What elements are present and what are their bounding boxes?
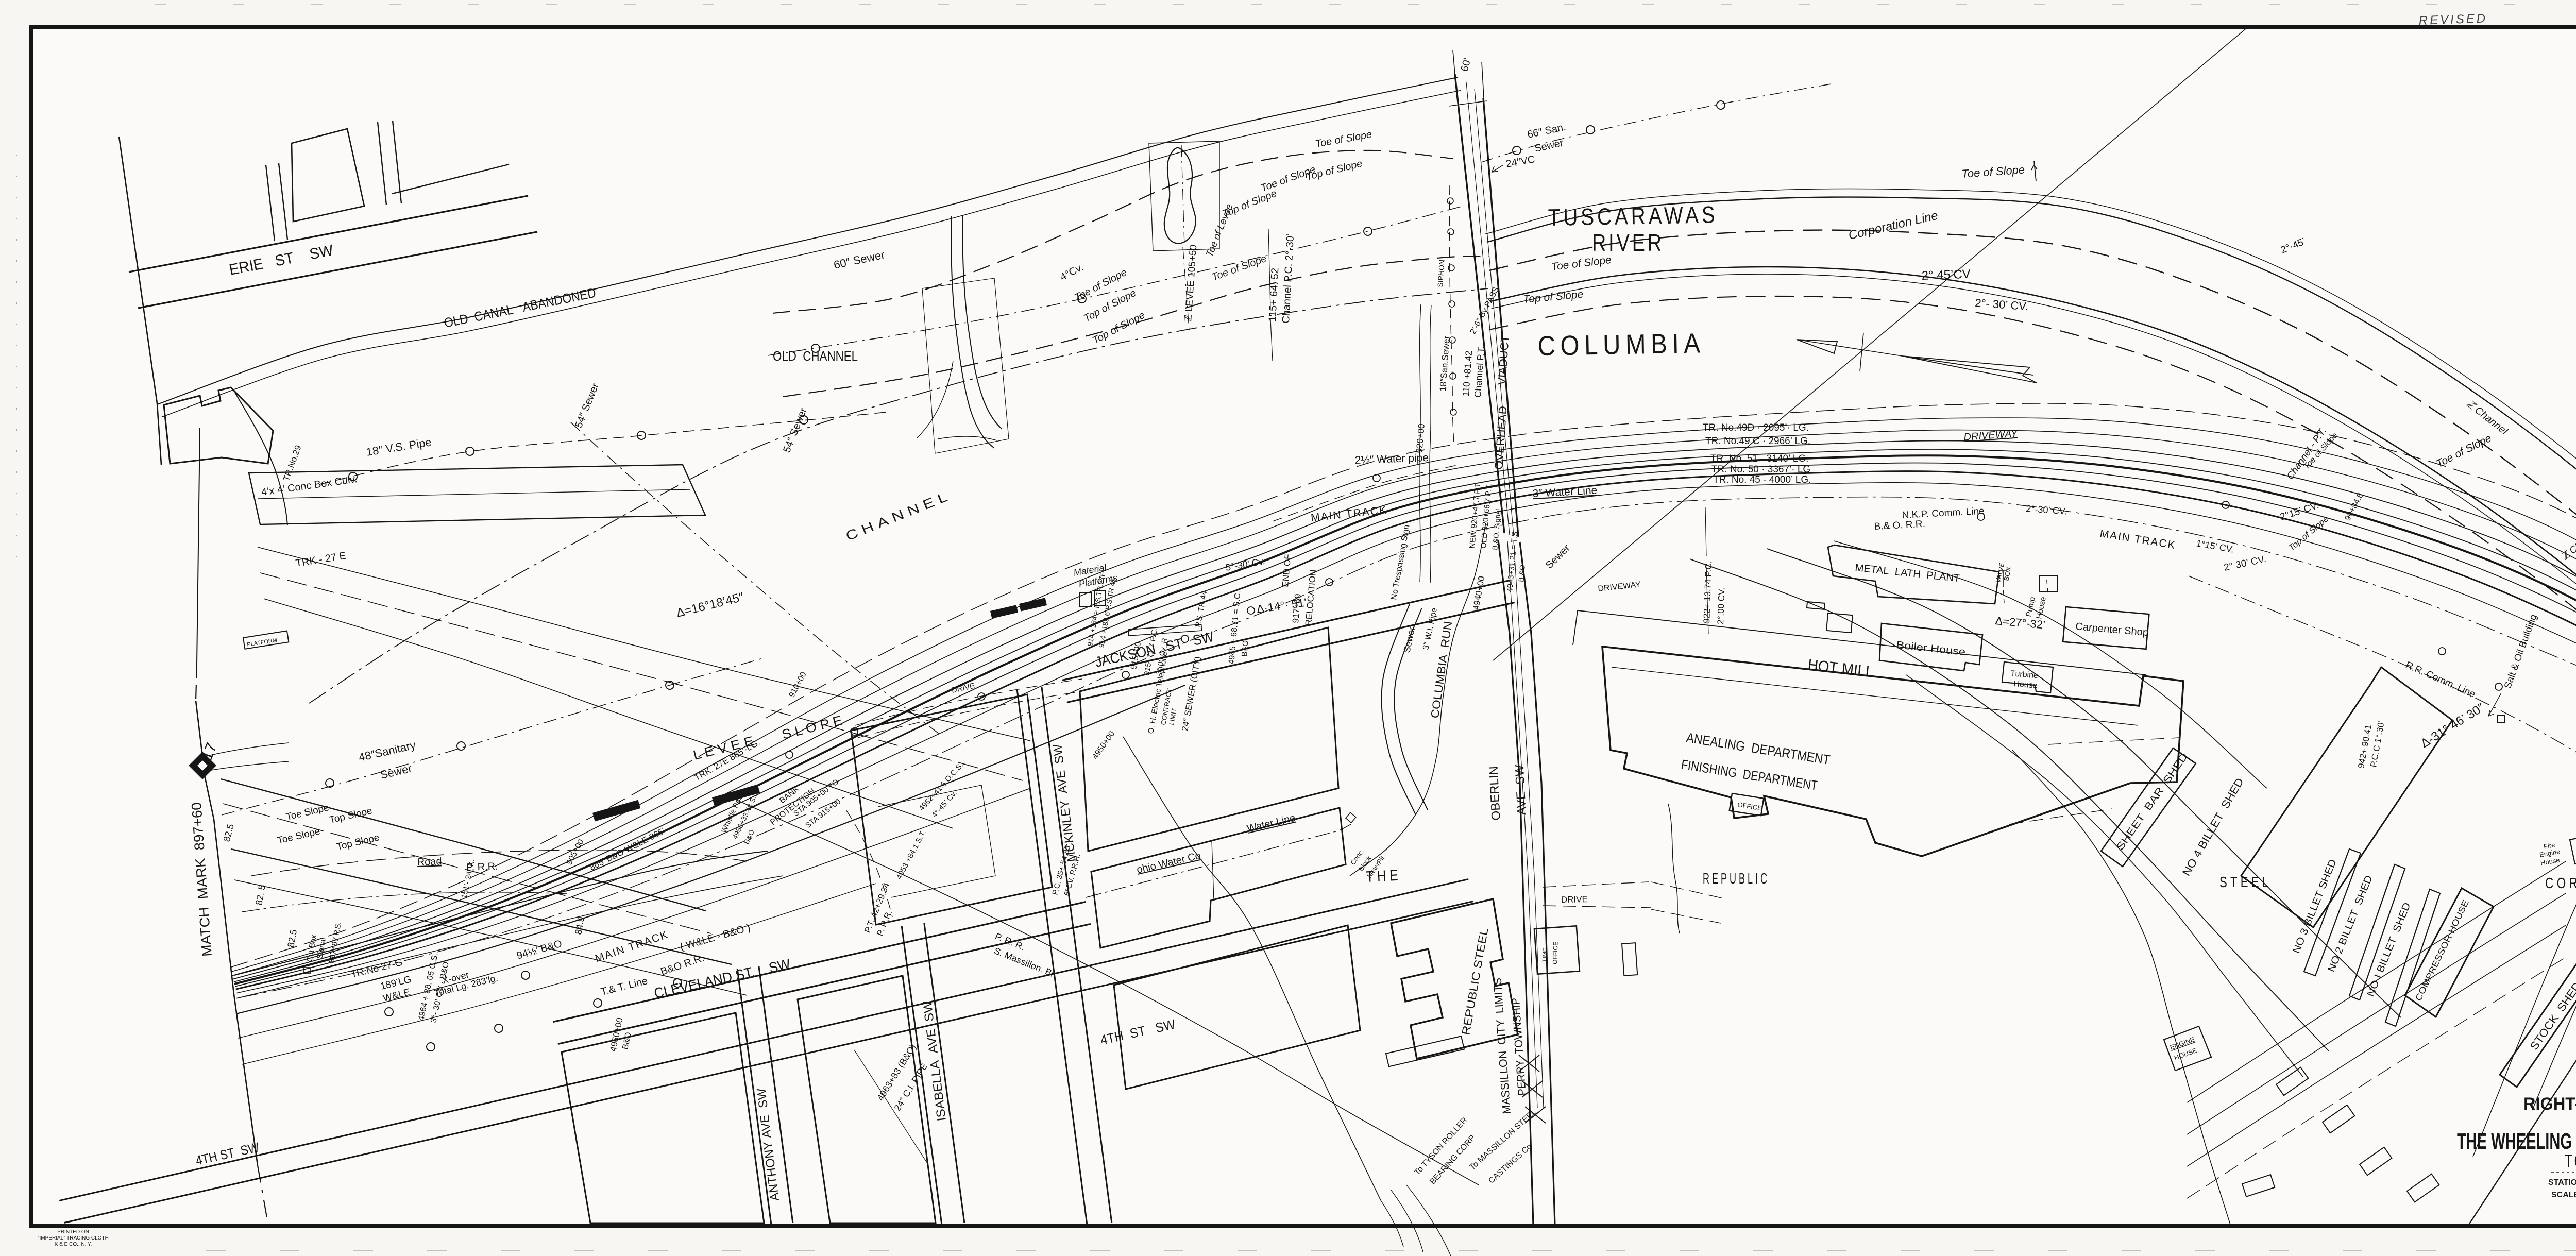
- svg-text:TOLEDO: TOLEDO: [2565, 1150, 2576, 1172]
- svg-text:2°.00 CV.: 2°.00 CV.: [1716, 587, 1726, 624]
- svg-text:AVE SW: AVE SW: [1513, 764, 1529, 816]
- svg-text:REVISED: REVISED: [2418, 11, 2487, 28]
- svg-text:DRIVE: DRIVE: [1561, 894, 1588, 905]
- svg-text:OFFICE: OFFICE: [1551, 942, 1560, 964]
- svg-text:TR. No.49D · 2095’· LG.: TR. No.49D · 2095’· LG.: [1703, 422, 1809, 433]
- svg-text:OBERLIN: OBERLIN: [1487, 766, 1503, 821]
- svg-text:TR. No.49 C · 2966’ LG.: TR. No.49 C · 2966’ LG.: [1705, 436, 1810, 447]
- svg-text:K & E CO., N. Y.: K & E CO., N. Y.: [55, 1242, 92, 1247]
- svg-text:STATION: STATION: [2548, 1178, 2576, 1187]
- svg-text:“IMPERIAL” TRACING CLOTH: “IMPERIAL” TRACING CLOTH: [38, 1235, 109, 1241]
- svg-text:C O R P’N.: C O R P’N.: [2545, 875, 2576, 892]
- svg-text:TR. No. 50 · 3367’· LG: TR. No. 50 · 3367’· LG: [1711, 464, 1810, 475]
- svg-text:RIGHT-OF-WAY AND TRACK MAP: RIGHT-OF-WAY AND TRACK MAP: [2523, 1094, 2576, 1114]
- svg-text:COLUMBIA: COLUMBIA: [1537, 328, 1705, 362]
- svg-text:2° 45’CV: 2° 45’CV: [1921, 267, 1971, 283]
- svg-text:TR. No. 51 - 3140’ LG.: TR. No. 51 - 3140’ LG.: [1710, 453, 1808, 464]
- svg-text:SCALE 1″ = 100’: SCALE 1″ = 100’: [2551, 1191, 2576, 1199]
- svg-text:TR. No. 45 - 4000’ LG.: TR. No. 45 - 4000’ LG.: [1713, 474, 1811, 485]
- svg-text:RIVER: RIVER: [1592, 229, 1664, 256]
- svg-text:PRINTED ON: PRINTED ON: [57, 1229, 89, 1235]
- svg-text:TIME: TIME: [1541, 947, 1549, 962]
- svg-text:T H E: T H E: [1366, 867, 1399, 886]
- svg-text:THE WHEELING AND LAKE ERIE R: THE WHEELING AND LAKE ERIE RAILWAY COMPA…: [2457, 1129, 2576, 1154]
- svg-text:OLD CHANNEL: OLD CHANNEL: [773, 348, 858, 364]
- svg-text:Road: Road: [417, 856, 442, 868]
- svg-text:S T E E L: S T E E L: [2219, 874, 2268, 891]
- svg-text:R E P U B L I C: R E P U B L I C: [1703, 871, 1767, 887]
- svg-text:TUSCARAWAS: TUSCARAWAS: [1548, 201, 1718, 231]
